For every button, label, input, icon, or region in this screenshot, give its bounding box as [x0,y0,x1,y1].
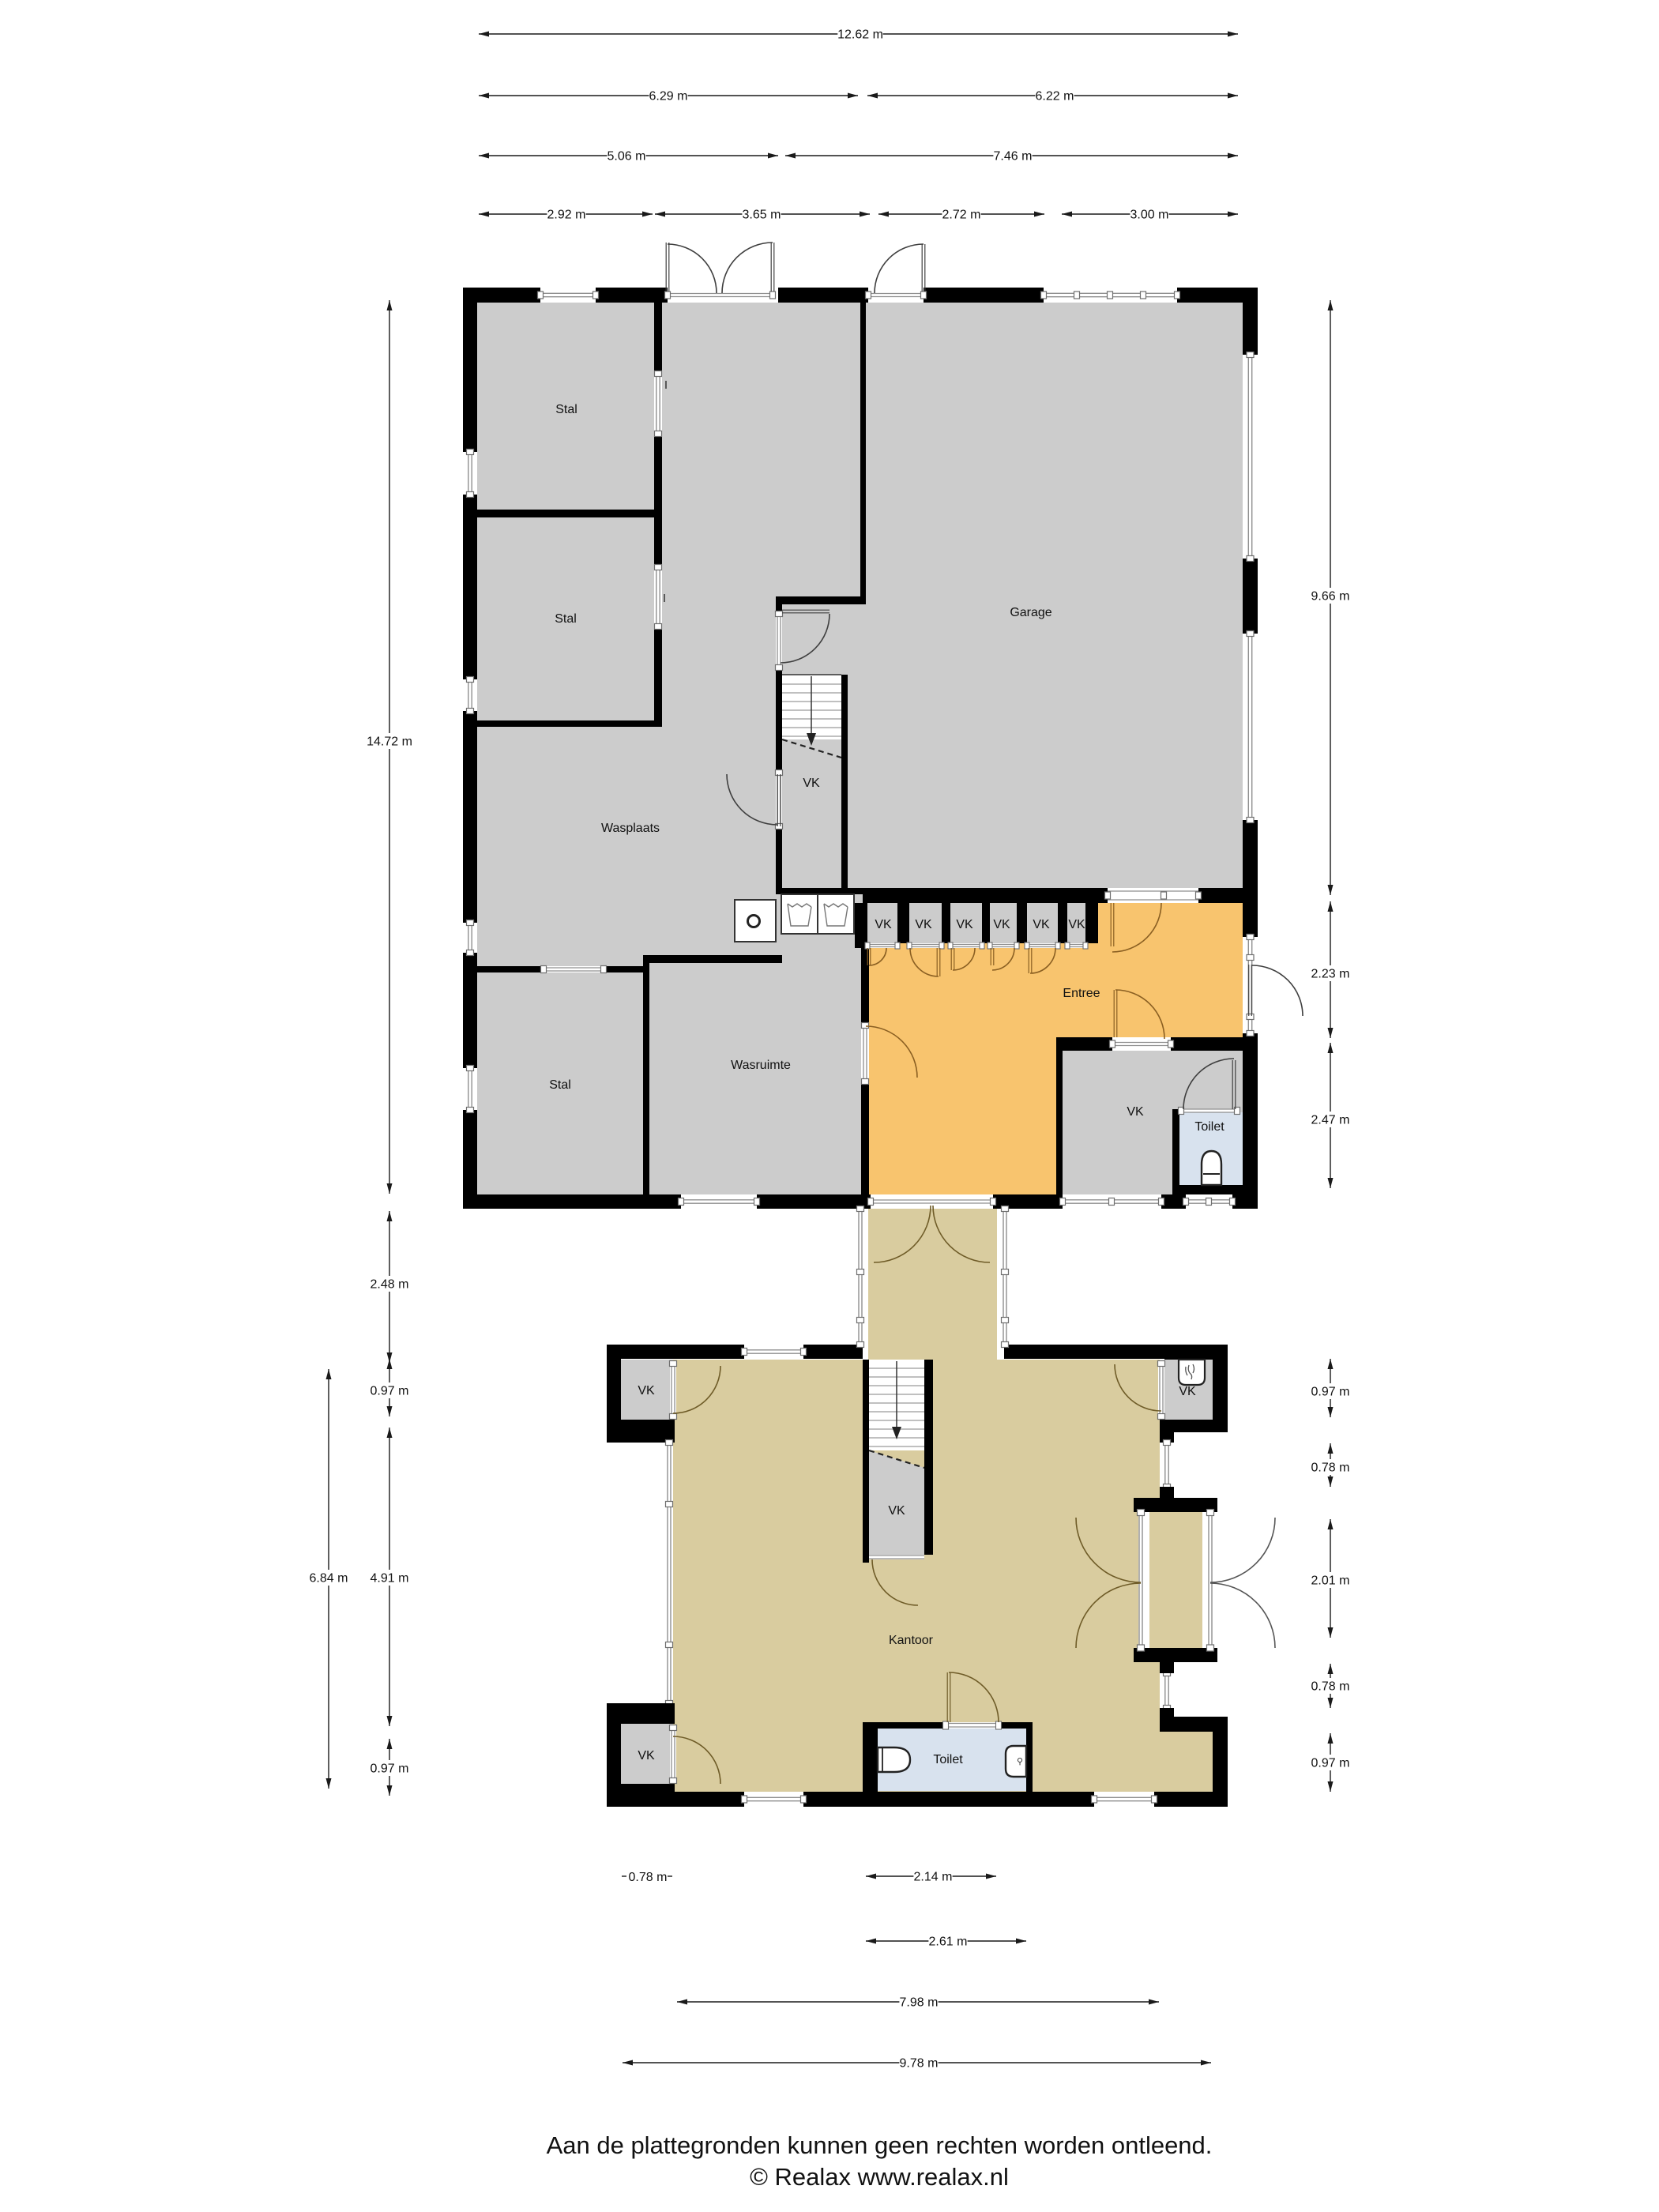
svg-text:14.72 m: 14.72 m [367,735,412,749]
svg-text:Toilet: Toilet [1194,1120,1224,1134]
svg-text:⚲: ⚲ [1017,1757,1023,1766]
svg-text:Stal: Stal [555,403,577,416]
svg-text:Stal: Stal [555,612,577,626]
svg-text:Stal: Stal [549,1078,571,1092]
svg-text:Toilet: Toilet [933,1753,963,1766]
svg-text:0.97 m: 0.97 m [1311,1757,1350,1770]
svg-text:© Realax www.realax.nl: © Realax www.realax.nl [750,2163,1009,2191]
svg-text:VK: VK [1179,1385,1196,1398]
svg-text:0.78 m: 0.78 m [1311,1461,1350,1475]
svg-text:Garage: Garage [1010,606,1051,619]
svg-text:Aan de plattegronden kunnen ge: Aan de plattegronden kunnen geen rechten… [547,2131,1213,2159]
svg-text:VK: VK [915,918,932,931]
svg-text:9.66 m: 9.66 m [1311,590,1350,604]
svg-text:Kantoor: Kantoor [889,1634,934,1647]
svg-text:0.78 m: 0.78 m [629,1871,668,1884]
svg-text:VK: VK [803,777,820,790]
svg-text:0.78 m: 0.78 m [1311,1680,1350,1694]
svg-text:VK: VK [888,1504,905,1518]
svg-text:VK: VK [638,1749,655,1762]
svg-text:2.72 m: 2.72 m [942,209,981,222]
svg-text:Wasruimte: Wasruimte [731,1059,791,1072]
svg-text:7.46 m: 7.46 m [994,150,1033,164]
svg-text:0.97 m: 0.97 m [1311,1386,1350,1399]
svg-text:VK: VK [875,918,892,931]
svg-text:6.84 m: 6.84 m [310,1572,348,1586]
svg-text:5.06 m: 5.06 m [608,150,646,164]
svg-text:VK: VK [1068,918,1085,931]
svg-text:2.01 m: 2.01 m [1311,1574,1350,1588]
svg-text:VK: VK [956,918,973,931]
svg-text:2.92 m: 2.92 m [547,209,586,222]
svg-text:2.14 m: 2.14 m [914,1871,953,1884]
svg-text:12.62 m: 12.62 m [837,28,883,42]
svg-text:2.23 m: 2.23 m [1311,968,1350,981]
svg-text:4.91 m: 4.91 m [371,1572,409,1586]
svg-text:2.47 m: 2.47 m [1311,1114,1350,1127]
svg-text:2.61 m: 2.61 m [929,1935,968,1949]
svg-text:2.48 m: 2.48 m [371,1278,409,1292]
svg-text:3.65 m: 3.65 m [743,209,781,222]
svg-text:9.78 m: 9.78 m [900,2057,939,2071]
svg-text:VK: VK [993,918,1010,931]
svg-text:VK: VK [638,1384,655,1398]
svg-text:3.00 m: 3.00 m [1130,209,1169,222]
svg-text:7.98 m: 7.98 m [900,1996,939,2010]
svg-text:0.97 m: 0.97 m [371,1762,409,1776]
svg-text:Wasplaats: Wasplaats [601,822,660,835]
svg-text:VK: VK [1127,1105,1144,1119]
svg-text:Entree: Entree [1063,987,1100,1000]
svg-text:6.29 m: 6.29 m [649,90,688,103]
svg-text:6.22 m: 6.22 m [1036,90,1074,103]
svg-text:VK: VK [1033,918,1050,931]
svg-text:0.97 m: 0.97 m [371,1385,409,1398]
